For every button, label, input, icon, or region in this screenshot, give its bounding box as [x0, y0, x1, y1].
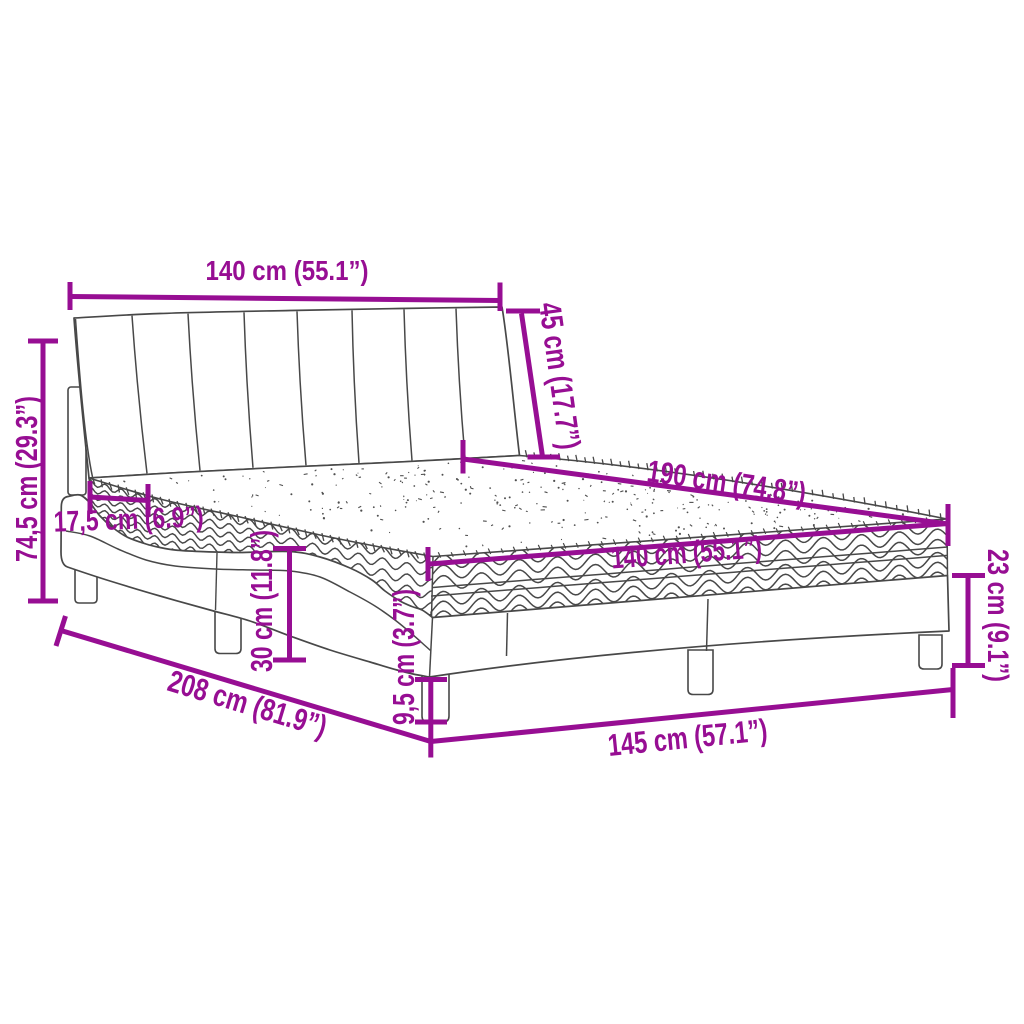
svg-text:74,5 cm (29.3”): 74,5 cm (29.3”) [9, 396, 44, 562]
svg-text:23 cm (9.1”): 23 cm (9.1”) [981, 549, 1014, 682]
svg-text:17,5 cm (6.9”): 17,5 cm (6.9”) [53, 501, 204, 538]
svg-text:140 cm (55.1”): 140 cm (55.1”) [206, 255, 369, 286]
svg-text:9,5 cm (3.7”): 9,5 cm (3.7”) [386, 589, 421, 725]
svg-text:30 cm (11.8”): 30 cm (11.8”) [244, 530, 279, 672]
